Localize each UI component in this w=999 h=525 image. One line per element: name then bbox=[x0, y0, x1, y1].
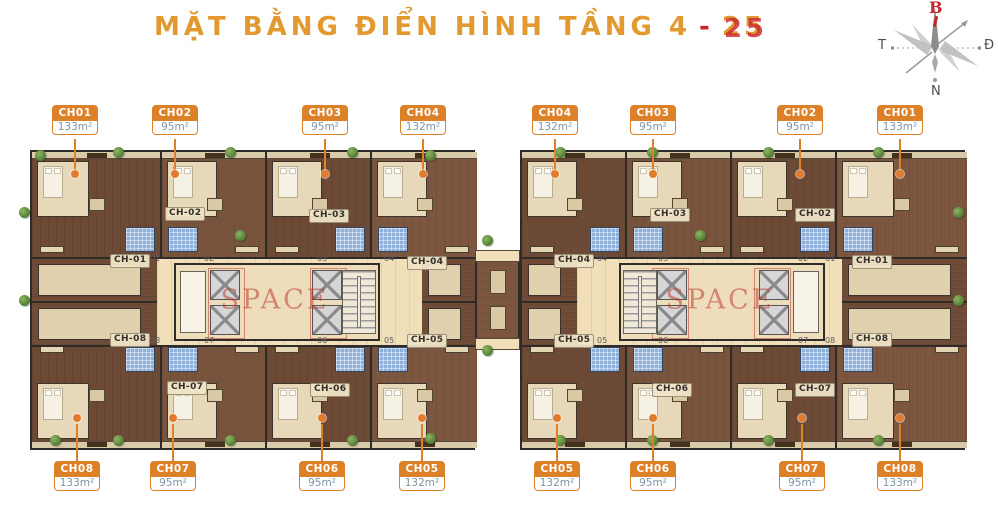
bed-icon bbox=[43, 388, 63, 420]
tag-marker-dot bbox=[169, 414, 177, 422]
pillow-icon bbox=[544, 168, 551, 174]
developer-watermark: SPACE bbox=[220, 285, 329, 316]
door-number: 05 bbox=[384, 337, 394, 345]
apartment-CH-02 bbox=[162, 152, 267, 257]
bedroom bbox=[842, 161, 894, 217]
bathroom bbox=[378, 347, 408, 372]
pillow-icon bbox=[394, 390, 401, 396]
bathroom bbox=[168, 227, 198, 252]
unit-tag-id: CH06 bbox=[299, 461, 345, 477]
dining-table bbox=[89, 198, 105, 211]
unit-tag-id: CH02 bbox=[777, 105, 823, 121]
tag-marker-dot bbox=[551, 170, 559, 178]
kitchen-counter bbox=[445, 346, 469, 353]
bedroom bbox=[528, 264, 561, 296]
wardrobe bbox=[565, 153, 585, 158]
dining-table bbox=[777, 389, 793, 402]
unit-tag: CH0795m² bbox=[779, 461, 825, 491]
wardrobe bbox=[205, 442, 225, 447]
plant-icon bbox=[347, 435, 358, 446]
wardrobe bbox=[310, 442, 330, 447]
door-number: 01 bbox=[825, 255, 835, 263]
apartment-label: CH-02 bbox=[165, 207, 205, 221]
plant-icon bbox=[425, 433, 436, 444]
pillow-icon bbox=[184, 168, 191, 174]
plant-icon bbox=[347, 147, 358, 158]
unit-tag: CH0395m² bbox=[630, 105, 676, 135]
unit-tag-area: 132m² bbox=[532, 121, 578, 135]
bathroom bbox=[843, 347, 873, 372]
plant-icon bbox=[873, 435, 884, 446]
inner-wall bbox=[422, 301, 477, 303]
pillow-icon bbox=[754, 390, 761, 396]
apartment-label: CH-08 bbox=[852, 333, 892, 347]
kitchen-counter bbox=[700, 246, 724, 253]
pillow-icon bbox=[54, 390, 61, 396]
pillow-icon bbox=[745, 168, 752, 174]
apartment-CH-03 bbox=[267, 152, 372, 257]
door-number: 01 bbox=[150, 255, 160, 263]
connecting-corridor bbox=[475, 250, 520, 262]
unit-tag-id: CH05 bbox=[534, 461, 580, 477]
kitchen-counter bbox=[530, 346, 554, 353]
kitchen-counter bbox=[935, 346, 959, 353]
bathroom bbox=[590, 347, 620, 372]
unit-tag-area: 95m² bbox=[779, 477, 825, 491]
kitchen-counter bbox=[740, 246, 764, 253]
apartment-CH-03 bbox=[627, 152, 732, 257]
bed-icon bbox=[43, 166, 63, 198]
stair-rail bbox=[357, 276, 360, 328]
tag-marker-dot bbox=[171, 170, 179, 178]
apartment-label: CH-07 bbox=[167, 381, 207, 395]
unit-tag: CH05132m² bbox=[399, 461, 445, 491]
connecting-rooms bbox=[475, 262, 520, 338]
dining-table bbox=[777, 198, 793, 211]
plant-icon bbox=[695, 230, 706, 241]
bedroom bbox=[37, 383, 89, 439]
kitchen-counter bbox=[275, 346, 299, 353]
door-number: 06 bbox=[658, 337, 668, 345]
unit-tag-area: 133m² bbox=[877, 477, 923, 491]
tag-leader-line bbox=[324, 139, 326, 172]
tag-marker-dot bbox=[418, 414, 426, 422]
dining-table bbox=[894, 389, 910, 402]
door-number: 08 bbox=[825, 337, 835, 345]
apartment-CH-02 bbox=[732, 152, 837, 257]
unit-tag-area: 132m² bbox=[399, 477, 445, 491]
bed-icon bbox=[278, 166, 298, 198]
kitchen-counter bbox=[235, 346, 259, 353]
unit-tag: CH0695m² bbox=[299, 461, 345, 491]
kitchen-counter bbox=[275, 246, 299, 253]
floor-plan: CH-01CH-02CH-03CH-04CH-08CH-07CH-06CH-05… bbox=[0, 0, 999, 525]
inner-wall bbox=[842, 301, 967, 303]
plant-icon bbox=[482, 235, 493, 246]
pillow-icon bbox=[850, 168, 857, 174]
tag-leader-line bbox=[801, 424, 803, 461]
bathroom bbox=[633, 347, 663, 372]
plant-icon bbox=[873, 147, 884, 158]
apartment-CH-05 bbox=[522, 343, 627, 448]
apartment-label: CH-06 bbox=[310, 383, 350, 397]
bathroom bbox=[800, 347, 830, 372]
unit-tag-area: 95m² bbox=[152, 121, 198, 135]
wardrobe bbox=[670, 153, 690, 158]
unit-tag-area: 95m² bbox=[777, 121, 823, 135]
bedroom bbox=[38, 264, 141, 296]
plant-icon bbox=[425, 150, 436, 161]
unit-tag: CH05132m² bbox=[534, 461, 580, 491]
stairs-icon bbox=[342, 270, 376, 334]
apartment-CH-08 bbox=[837, 343, 967, 448]
tag-marker-dot bbox=[419, 170, 427, 178]
kitchen-counter bbox=[935, 246, 959, 253]
dining-table bbox=[417, 389, 433, 402]
plant-icon bbox=[235, 230, 246, 241]
wardrobe bbox=[565, 442, 585, 447]
plant-icon bbox=[953, 207, 964, 218]
wardrobe bbox=[892, 153, 912, 158]
unit-tag-area: 133m² bbox=[54, 477, 100, 491]
bed-icon bbox=[743, 388, 763, 420]
tag-leader-line bbox=[899, 424, 901, 461]
kitchen-counter bbox=[445, 246, 469, 253]
pillow-icon bbox=[859, 168, 866, 174]
plant-icon bbox=[19, 295, 30, 306]
unit-tag-id: CH01 bbox=[877, 105, 923, 121]
unit-tag-area: 133m² bbox=[877, 121, 923, 135]
dining-table bbox=[89, 389, 105, 402]
unit-tag: CH08133m² bbox=[54, 461, 100, 491]
pillow-icon bbox=[754, 168, 761, 174]
apartment-label: CH-05 bbox=[407, 334, 447, 348]
apartment-CH-01 bbox=[32, 152, 162, 257]
unit-tag-id: CH08 bbox=[877, 461, 923, 477]
pillow-icon bbox=[745, 390, 752, 396]
bed-icon bbox=[383, 166, 403, 198]
tag-marker-dot bbox=[896, 414, 904, 422]
apartment-CH-08 bbox=[32, 343, 162, 448]
unit-tag-area: 95m² bbox=[150, 477, 196, 491]
pillow-icon bbox=[280, 168, 287, 174]
door-number: 02 bbox=[204, 255, 214, 263]
dining-table bbox=[207, 389, 223, 402]
unit-tag-area: 95m² bbox=[630, 121, 676, 135]
pillow-icon bbox=[535, 390, 542, 396]
kitchen-counter bbox=[700, 346, 724, 353]
plant-icon bbox=[555, 147, 566, 158]
unit-tag-id: CH04 bbox=[532, 105, 578, 121]
unit-tag-id: CH01 bbox=[52, 105, 98, 121]
plant-icon bbox=[763, 147, 774, 158]
tag-leader-line bbox=[172, 424, 174, 461]
bedroom bbox=[37, 161, 89, 217]
apartment-label: CH-01 bbox=[110, 254, 150, 268]
unit-tag-id: CH03 bbox=[630, 105, 676, 121]
wardrobe bbox=[670, 442, 690, 447]
unit-tag: CH0295m² bbox=[777, 105, 823, 135]
plant-icon bbox=[763, 435, 774, 446]
floor-plan-page: MẶT BẰNG ĐIỂN HÌNH TẦNG 4-2525 B N T Đ C… bbox=[0, 0, 999, 525]
apartment-label: CH-06 bbox=[652, 383, 692, 397]
inner-wall bbox=[32, 301, 157, 303]
bed-icon bbox=[743, 166, 763, 198]
wardrobe bbox=[775, 442, 795, 447]
bathroom bbox=[335, 227, 365, 252]
unit-tag-area: 133m² bbox=[52, 121, 98, 135]
apartment-label: CH-02 bbox=[795, 208, 835, 222]
pillow-icon bbox=[45, 390, 52, 396]
unit-tag-id: CH02 bbox=[152, 105, 198, 121]
bathroom bbox=[125, 227, 155, 252]
unit-tag: CH01133m² bbox=[52, 105, 98, 135]
door-number: 04 bbox=[384, 255, 394, 263]
door-number: 05 bbox=[597, 337, 607, 345]
apartment-label: CH-03 bbox=[650, 208, 690, 222]
door-number: 03 bbox=[317, 255, 327, 263]
bathroom bbox=[125, 347, 155, 372]
bedroom bbox=[842, 383, 894, 439]
plant-icon bbox=[482, 345, 493, 356]
tag-marker-dot bbox=[649, 414, 657, 422]
tag-leader-line bbox=[652, 139, 654, 172]
stairs-icon bbox=[623, 270, 657, 334]
kitchen-counter bbox=[40, 346, 64, 353]
unit-tag-id: CH06 bbox=[630, 461, 676, 477]
tag-marker-dot bbox=[796, 170, 804, 178]
bed-icon bbox=[533, 166, 553, 198]
unit-tag-id: CH05 bbox=[399, 461, 445, 477]
unit-tag: CH0695m² bbox=[630, 461, 676, 491]
plant-icon bbox=[225, 435, 236, 446]
unit-tag-id: CH04 bbox=[400, 105, 446, 121]
tag-marker-dot bbox=[73, 414, 81, 422]
unit-tag-id: CH03 bbox=[302, 105, 348, 121]
tag-leader-line bbox=[556, 424, 558, 461]
bathroom bbox=[168, 347, 198, 372]
unit-tag-area: 132m² bbox=[400, 121, 446, 135]
pillow-icon bbox=[850, 390, 857, 396]
door-number: 07 bbox=[204, 337, 214, 345]
pillow-icon bbox=[535, 168, 542, 174]
pillow-icon bbox=[544, 390, 551, 396]
tag-leader-line bbox=[422, 139, 424, 172]
tag-leader-line bbox=[799, 139, 801, 172]
bathroom bbox=[800, 227, 830, 252]
apartment-CH-04 bbox=[372, 152, 477, 257]
apartment-CH-05 bbox=[372, 343, 477, 448]
dining-table bbox=[207, 198, 223, 211]
lobby-room bbox=[180, 271, 206, 333]
tag-marker-dot bbox=[896, 170, 904, 178]
inner-wall bbox=[522, 301, 577, 303]
tag-marker-dot bbox=[71, 170, 79, 178]
plant-icon bbox=[225, 147, 236, 158]
wardrobe bbox=[205, 153, 225, 158]
plant-icon bbox=[35, 150, 46, 161]
tag-marker-dot bbox=[321, 170, 329, 178]
pillow-icon bbox=[54, 168, 61, 174]
tag-marker-dot bbox=[553, 414, 561, 422]
pillow-icon bbox=[859, 390, 866, 396]
unit-tag: CH01133m² bbox=[877, 105, 923, 135]
wardrobe bbox=[310, 153, 330, 158]
pillow-icon bbox=[45, 168, 52, 174]
apartment-label: CH-03 bbox=[309, 209, 349, 223]
apartment-label: CH-01 bbox=[852, 255, 892, 269]
tag-marker-dot bbox=[798, 414, 806, 422]
bed-icon bbox=[533, 388, 553, 420]
tag-marker-dot bbox=[649, 170, 657, 178]
unit-tag: CH0795m² bbox=[150, 461, 196, 491]
pillow-icon bbox=[289, 390, 296, 396]
apartment-CH-07 bbox=[162, 343, 267, 448]
tag-leader-line bbox=[899, 139, 901, 172]
plant-icon bbox=[113, 147, 124, 158]
unit-tag: CH0395m² bbox=[302, 105, 348, 135]
bathroom bbox=[590, 227, 620, 252]
bathroom bbox=[843, 227, 873, 252]
bed-icon bbox=[383, 388, 403, 420]
bed-icon bbox=[848, 166, 868, 198]
bathroom bbox=[378, 227, 408, 252]
bed-icon bbox=[848, 388, 868, 420]
wardrobe bbox=[775, 153, 795, 158]
door-number: 07 bbox=[798, 337, 808, 345]
pillow-icon bbox=[394, 168, 401, 174]
pillow-icon bbox=[640, 168, 647, 174]
stair-rail bbox=[638, 276, 641, 328]
tag-leader-line bbox=[421, 424, 423, 461]
lobby-room bbox=[793, 271, 819, 333]
wardrobe bbox=[892, 442, 912, 447]
pillow-icon bbox=[385, 390, 392, 396]
apartment-CH-01 bbox=[837, 152, 967, 257]
dining-table bbox=[490, 270, 506, 294]
unit-tag: CH04132m² bbox=[400, 105, 446, 135]
bathroom bbox=[633, 227, 663, 252]
plant-icon bbox=[19, 207, 30, 218]
wardrobe bbox=[87, 153, 107, 158]
wardrobe bbox=[87, 442, 107, 447]
developer-watermark: SPACE bbox=[665, 285, 774, 316]
kitchen-counter bbox=[740, 346, 764, 353]
tag-marker-dot bbox=[318, 414, 326, 422]
tag-leader-line bbox=[554, 139, 556, 172]
apartment-CH-04 bbox=[522, 152, 627, 257]
kitchen-counter bbox=[40, 246, 64, 253]
door-number: 06 bbox=[317, 337, 327, 345]
plant-icon bbox=[50, 435, 61, 446]
dining-table bbox=[567, 389, 583, 402]
kitchen-counter bbox=[235, 246, 259, 253]
dining-table bbox=[490, 306, 506, 330]
unit-tag-id: CH07 bbox=[150, 461, 196, 477]
dining-table bbox=[894, 198, 910, 211]
pillow-icon bbox=[640, 390, 647, 396]
bathroom bbox=[335, 347, 365, 372]
bed-icon bbox=[278, 388, 298, 420]
unit-tag-area: 95m² bbox=[302, 121, 348, 135]
apartment-label: CH-05 bbox=[554, 334, 594, 348]
apartment-label: CH-08 bbox=[110, 333, 150, 347]
apartment-label: CH-04 bbox=[407, 256, 447, 270]
apartment-label: CH-04 bbox=[554, 254, 594, 268]
tag-leader-line bbox=[74, 139, 76, 172]
unit-tag: CH04132m² bbox=[532, 105, 578, 135]
tag-leader-line bbox=[652, 424, 654, 461]
unit-tag: CH08133m² bbox=[877, 461, 923, 491]
dining-table bbox=[417, 198, 433, 211]
unit-tag-id: CH07 bbox=[779, 461, 825, 477]
apartment-label: CH-07 bbox=[795, 383, 835, 397]
tag-leader-line bbox=[321, 424, 323, 461]
pillow-icon bbox=[385, 168, 392, 174]
dining-table bbox=[567, 198, 583, 211]
unit-tag-area: 95m² bbox=[630, 477, 676, 491]
unit-tag-id: CH08 bbox=[54, 461, 100, 477]
unit-tag-area: 132m² bbox=[534, 477, 580, 491]
plant-icon bbox=[113, 435, 124, 446]
unit-tag: CH0295m² bbox=[152, 105, 198, 135]
pillow-icon bbox=[289, 168, 296, 174]
door-number: 02 bbox=[798, 255, 808, 263]
door-number: 08 bbox=[150, 337, 160, 345]
unit-tag-area: 95m² bbox=[299, 477, 345, 491]
door-number: 04 bbox=[597, 255, 607, 263]
pillow-icon bbox=[280, 390, 287, 396]
door-number: 03 bbox=[658, 255, 668, 263]
tag-leader-line bbox=[174, 139, 176, 172]
kitchen-counter bbox=[530, 246, 554, 253]
tag-leader-line bbox=[76, 424, 78, 461]
plant-icon bbox=[953, 295, 964, 306]
